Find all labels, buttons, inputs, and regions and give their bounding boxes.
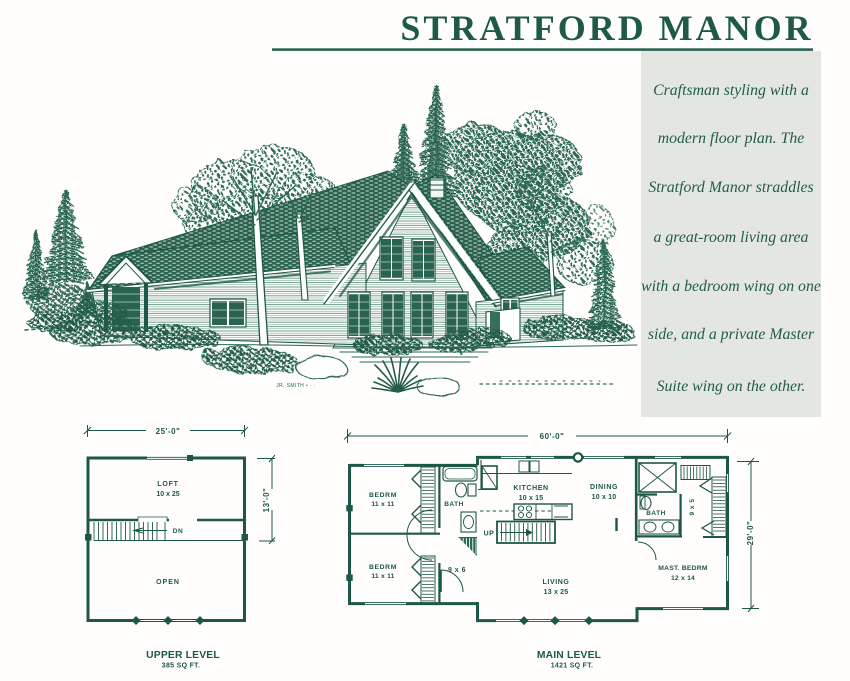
svg-text:385 SQ FT.: 385 SQ FT.	[162, 663, 200, 670]
svg-text:Suite wing on the other.: Suite wing on the other.	[657, 378, 806, 395]
svg-text:LOFT: LOFT	[157, 481, 178, 488]
svg-text:UPPER LEVEL: UPPER LEVEL	[146, 650, 220, 661]
svg-text:1421 SQ FT.: 1421 SQ FT.	[551, 663, 594, 670]
svg-text:10 x 25: 10 x 25	[156, 491, 179, 498]
svg-text:10 x 15: 10 x 15	[519, 495, 544, 502]
svg-text:OPEN: OPEN	[156, 579, 180, 586]
svg-text:DINING: DINING	[590, 484, 618, 491]
svg-text:Craftsman styling with a: Craftsman styling with a	[653, 82, 809, 99]
svg-text:9 x 6: 9 x 6	[448, 567, 466, 574]
svg-text:KITCHEN: KITCHEN	[513, 485, 548, 492]
svg-text:modern floor plan. The: modern floor plan. The	[658, 130, 805, 147]
svg-text:LIVING: LIVING	[543, 579, 570, 586]
svg-text:BEDRM: BEDRM	[369, 564, 397, 571]
svg-text:with a bedroom wing on one: with a bedroom wing on one	[641, 278, 821, 295]
svg-text:29'-0": 29'-0"	[746, 521, 755, 546]
svg-text:13 x 25: 13 x 25	[544, 589, 569, 596]
svg-text:side, and a private Master: side, and a private Master	[648, 326, 815, 343]
svg-text:BATH: BATH	[444, 501, 464, 508]
svg-text:9 x 5: 9 x 5	[689, 499, 696, 516]
svg-text:10 x 10: 10 x 10	[592, 494, 617, 501]
svg-text:MAIN LEVEL: MAIN LEVEL	[537, 650, 601, 661]
svg-text:MAST. BEDRM: MAST. BEDRM	[658, 565, 708, 572]
svg-text:BATH: BATH	[646, 510, 666, 517]
svg-text:STRATFORD MANOR: STRATFORD MANOR	[400, 8, 813, 48]
svg-text:60'-0": 60'-0"	[540, 432, 565, 441]
svg-text:11 x 11: 11 x 11	[371, 501, 394, 508]
svg-text:a great-room living area: a great-room living area	[654, 229, 809, 246]
svg-text:12 x 14: 12 x 14	[671, 575, 695, 582]
svg-text:UP: UP	[484, 531, 495, 538]
svg-text:11 x 11: 11 x 11	[371, 573, 394, 580]
svg-text:JR. SMITH • · ·: JR. SMITH • · ·	[276, 383, 316, 389]
svg-text:DN: DN	[173, 528, 183, 535]
svg-text:13'-0": 13'-0"	[262, 488, 271, 513]
svg-text:25'-0": 25'-0"	[156, 427, 181, 436]
svg-text:Stratford Manor straddles: Stratford Manor straddles	[648, 179, 813, 196]
svg-text:BEDRM: BEDRM	[369, 492, 397, 499]
